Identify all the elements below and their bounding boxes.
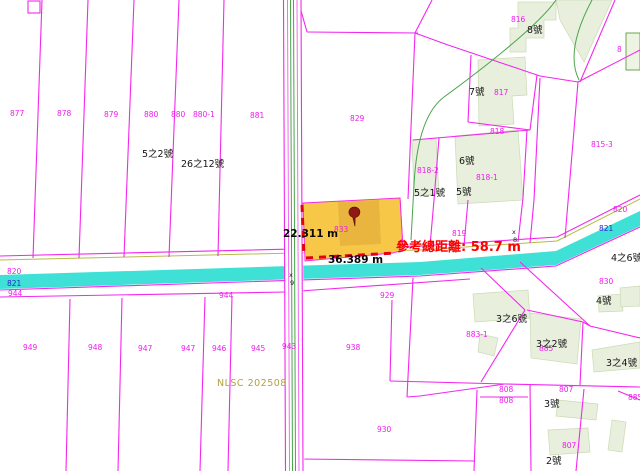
parcel-number-label: 947 xyxy=(138,344,153,353)
parcel-number-label: 820 xyxy=(613,205,628,214)
parcel-number-label: 829 xyxy=(350,114,365,123)
map-viewport[interactable]: 22.311 m 36.389 m 參考總距離: 58.7 m 87787887… xyxy=(0,0,640,471)
address-label: 3之2號 xyxy=(536,338,568,350)
parcel-number-label: 938 xyxy=(346,343,361,352)
parcel-number-label: 944 xyxy=(8,289,23,298)
parcel-number-label: 818-1 xyxy=(476,173,498,182)
parcel-number-label: 820 xyxy=(7,267,22,276)
building xyxy=(620,286,640,307)
parcel-number-label: 807 xyxy=(559,385,574,394)
address-label: 5號 xyxy=(456,186,472,198)
selected-parcel-building xyxy=(338,200,381,246)
parcel-number-label: 816 xyxy=(511,15,526,24)
parcel-number-label: 8 xyxy=(617,45,622,54)
parcel-number-label: 815-3 xyxy=(591,140,613,149)
waterway-label: 821 xyxy=(599,224,614,233)
building xyxy=(556,0,612,62)
parcel-number-label: 878 xyxy=(57,109,72,118)
parcel-number-label: 818 xyxy=(490,127,505,136)
parcel-number-label: 808 xyxy=(499,396,514,405)
parcel-number-label: 830 xyxy=(599,277,614,286)
address-label: 26之12號 xyxy=(181,158,225,170)
map-canvas[interactable]: 22.311 m 36.389 m 參考總距離: 58.7 m 87787887… xyxy=(0,0,640,471)
address-label: 8號 xyxy=(527,24,543,36)
measure-length-b: 36.389 m xyxy=(328,254,383,266)
parcel-number-label: 929 xyxy=(380,291,395,300)
parcel-number-label: 946 xyxy=(212,344,227,353)
building xyxy=(556,400,598,420)
watermark: NLSC 202508 xyxy=(217,378,287,389)
parcel-number-label: 944 xyxy=(219,291,234,300)
survey-marker-label: 9 xyxy=(290,279,294,287)
parcel-number-label: 948 xyxy=(88,343,103,352)
parcel-number-label: 817 xyxy=(494,88,509,97)
parcel-number-label: 885 xyxy=(628,393,640,402)
address-label: 6號 xyxy=(459,155,475,167)
bank-parcel-line xyxy=(300,279,470,291)
parcel-number-label: 881 xyxy=(250,111,265,120)
small-parcel-box xyxy=(28,1,40,13)
parcel-number-label: 833 xyxy=(334,225,349,234)
parcel-number-label: 808 xyxy=(499,385,514,394)
survey-marker-label: 8 xyxy=(513,236,517,244)
parcel-number-label: 818-2 xyxy=(417,166,439,175)
building xyxy=(608,420,626,452)
measure-length-a: 22.311 m xyxy=(283,228,338,240)
parcel-number-label: 949 xyxy=(23,343,38,352)
address-label: 4之6號 xyxy=(611,252,640,264)
address-label: 7號 xyxy=(469,86,485,98)
survey-marker-label: x xyxy=(289,271,293,279)
address-label: 5之1號 xyxy=(414,187,446,199)
address-label: 3之6號 xyxy=(496,313,528,325)
parcel-number-label: 807 xyxy=(562,441,577,450)
measure-total: 參考總距離: 58.7 m xyxy=(396,239,521,255)
address-label: 3之4號 xyxy=(606,357,638,369)
address-label: 4號 xyxy=(596,295,612,307)
parcel-number-label: 880-1 xyxy=(193,110,215,119)
parcel-number-label: 819 xyxy=(452,229,467,238)
parcel-number-label: 877 xyxy=(10,109,25,118)
bank-parcel-line xyxy=(0,292,286,297)
parcel-number-label: 879 xyxy=(104,110,119,119)
parcel-number-label: 880 xyxy=(144,110,159,119)
parcel-number-label: 883-1 xyxy=(466,330,488,339)
address-label: 2號 xyxy=(546,455,562,467)
parcel-number-label: 943 xyxy=(282,342,297,351)
parcel-number-label: 947 xyxy=(181,344,196,353)
address-label: 3號 xyxy=(544,398,560,410)
survey-marker-label: x xyxy=(512,228,516,236)
parcel-number-label: 880 xyxy=(171,110,186,119)
waterway-label: 821 xyxy=(7,279,22,288)
address-label: 5之2號 xyxy=(142,148,174,160)
parcel-number-label: 930 xyxy=(377,425,392,434)
parcel-number-label: 945 xyxy=(251,344,266,353)
